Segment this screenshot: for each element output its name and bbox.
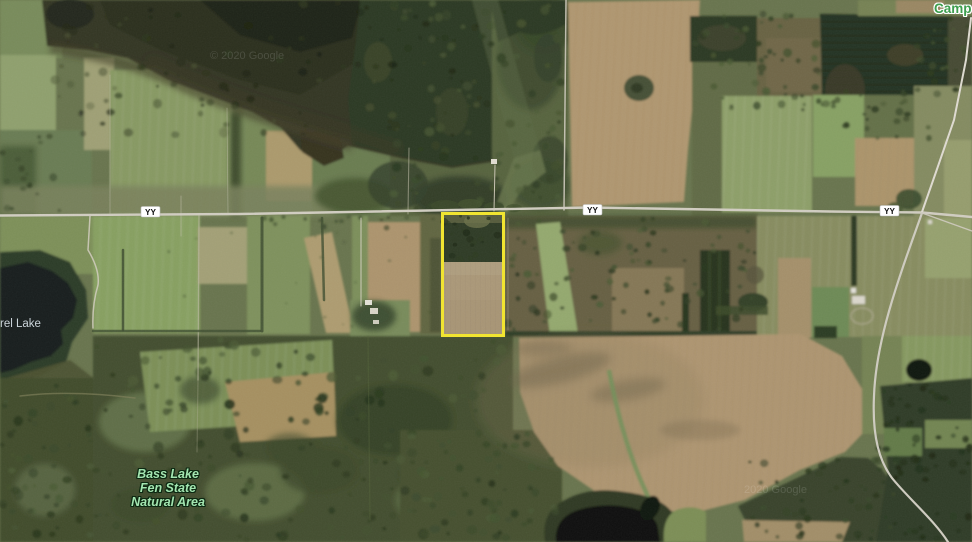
svg-text:Camp: Camp bbox=[934, 1, 972, 16]
svg-text:Fen State: Fen State bbox=[140, 481, 196, 495]
svg-text:YY: YY bbox=[145, 208, 156, 217]
svg-text:YY: YY bbox=[587, 206, 598, 215]
svg-text:YY: YY bbox=[884, 207, 895, 216]
svg-text:Bass Lake: Bass Lake bbox=[137, 467, 199, 481]
svg-text:© 2020 Google: © 2020 Google bbox=[210, 50, 284, 62]
svg-text:rel Lake: rel Lake bbox=[0, 318, 41, 330]
svg-text:2020 Google: 2020 Google bbox=[744, 484, 807, 496]
svg-text:Natural Area: Natural Area bbox=[131, 495, 205, 509]
